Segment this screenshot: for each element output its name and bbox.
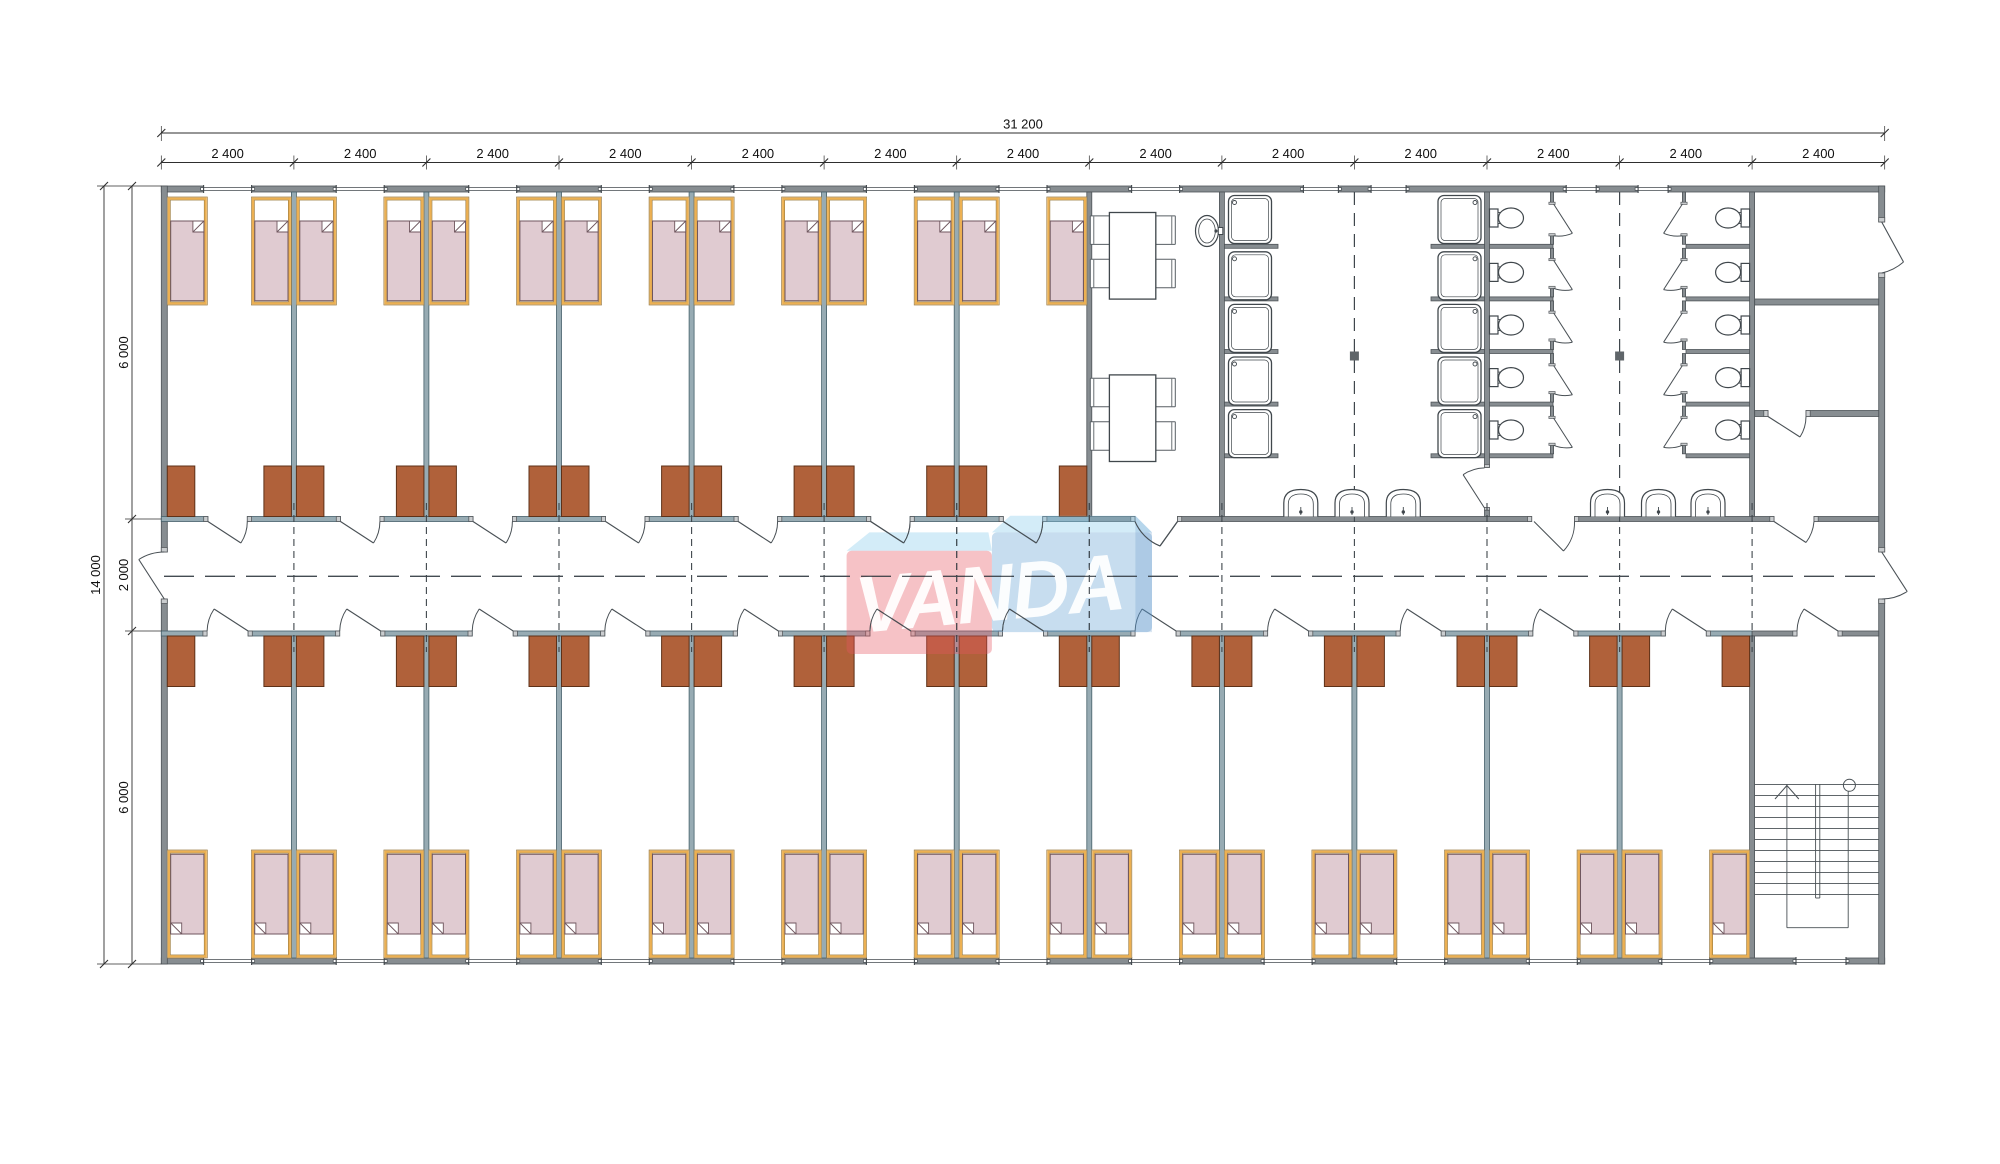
svg-text:2 400: 2 400 bbox=[1404, 146, 1437, 161]
svg-text:2 400: 2 400 bbox=[476, 146, 509, 161]
svg-text:2 400: 2 400 bbox=[1139, 146, 1172, 161]
svg-text:2 400: 2 400 bbox=[344, 146, 377, 161]
svg-text:2 400: 2 400 bbox=[1670, 146, 1703, 161]
svg-text:2 400: 2 400 bbox=[1537, 146, 1570, 161]
svg-text:2 000: 2 000 bbox=[116, 559, 131, 592]
svg-text:31 200: 31 200 bbox=[1003, 117, 1043, 132]
svg-text:6 000: 6 000 bbox=[116, 781, 131, 814]
svg-text:2 400: 2 400 bbox=[742, 146, 775, 161]
svg-text:2 400: 2 400 bbox=[1007, 146, 1040, 161]
svg-text:2 400: 2 400 bbox=[211, 146, 244, 161]
svg-text:2 400: 2 400 bbox=[874, 146, 907, 161]
svg-text:2 400: 2 400 bbox=[609, 146, 642, 161]
svg-text:2 400: 2 400 bbox=[1802, 146, 1835, 161]
svg-text:14 000: 14 000 bbox=[88, 555, 103, 595]
svg-text:6 000: 6 000 bbox=[116, 336, 131, 369]
svg-text:2 400: 2 400 bbox=[1272, 146, 1305, 161]
